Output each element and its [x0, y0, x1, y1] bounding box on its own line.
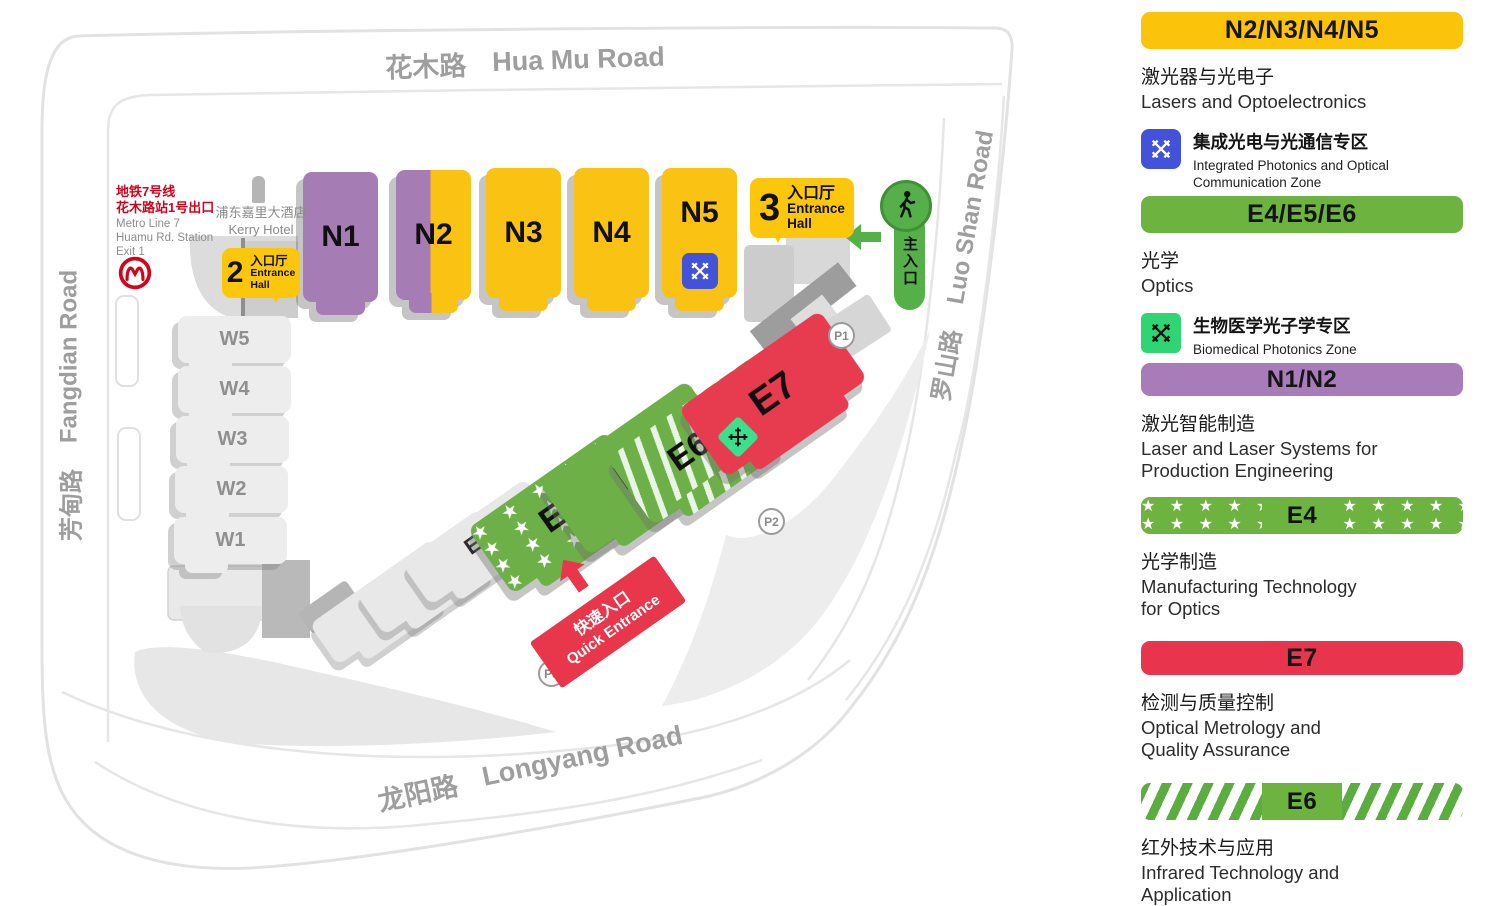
hall-stub	[587, 291, 637, 311]
road-fangdian-en: Fangdian Road	[55, 270, 83, 443]
hall-n2: N2	[396, 170, 471, 300]
metro-exit-zh: 花木路站1号出口	[116, 200, 214, 216]
legend-manufacturing-zh: 光学制造	[1141, 547, 1463, 574]
hall-stub	[499, 291, 549, 311]
legend-laser-systems-en2: Production Engineering	[1141, 460, 1463, 482]
legend-badge-e7: E7	[1141, 641, 1463, 675]
entrance-hall-3-bubble: 3 入口厅 Entrance Hall	[750, 178, 854, 238]
hall-stub	[675, 291, 725, 311]
legend-manufacturing-en2: for Optics	[1141, 598, 1463, 620]
legend-group-optics: E4/E5/E6 光学 Optics 生物医学光子学专区 Biomedical …	[1141, 196, 1463, 358]
subzone-photonics-en2: Communication Zone	[1193, 174, 1389, 191]
legend-badge-e4: E4	[1141, 497, 1463, 534]
entrance-2-en2: Hall	[250, 280, 295, 291]
hall-n4-label: N4	[592, 216, 630, 250]
legend-laser-systems-en1: Laser and Laser Systems for	[1141, 438, 1463, 460]
subzone-photonics-zh: 集成光电与光通信专区	[1193, 129, 1389, 154]
hall-w1-label: W1	[216, 529, 246, 552]
hall-w1: W1	[174, 517, 287, 564]
legend-subzone-biomedical: 生物医学光子学专区 Biomedical Photonics Zone	[1141, 313, 1463, 358]
entrance-2-number: 2	[227, 256, 244, 290]
hall-n3-label: N3	[504, 216, 542, 250]
entrance-3-en2: Hall	[787, 217, 845, 232]
hall-e7-label: E7	[742, 363, 805, 425]
hall-w2: W2	[175, 466, 288, 513]
integrated-photonics-icon	[682, 253, 718, 289]
legend-infrared-en2: Application	[1141, 884, 1463, 906]
legend-group-infrared: E6 红外技术与应用 Infrared Technology and Appli…	[1141, 783, 1463, 906]
hall-stub	[409, 293, 459, 313]
legend-optics-zh: 光学	[1141, 246, 1463, 273]
legend-badge-e4e5e6: E4/E5/E6	[1141, 196, 1463, 233]
hall-stub	[316, 295, 366, 315]
legend-metrology-zh: 检测与质量控制	[1141, 688, 1463, 715]
subzone-photonics-en1: Integrated Photonics and Optical	[1193, 157, 1389, 174]
legend-manufacturing-en1: Manufacturing Technology	[1141, 576, 1463, 598]
parking-p2: P2	[758, 508, 785, 535]
legend-badge-e6-label: E6	[1262, 783, 1342, 820]
legend-panel: N2/N3/N4/N5 激光器与光电子 Lasers and Optoelect…	[1141, 0, 1463, 900]
legend-group-metrology: E7 检测与质量控制 Optical Metrology and Quality…	[1141, 641, 1463, 761]
entrance-2-zh: 入口厅	[250, 255, 295, 268]
road-fangdian-zh: 芳甸路	[52, 469, 87, 541]
integrated-photonics-icon	[1141, 129, 1181, 169]
kerry-hotel-label: 浦东嘉里大酒店 Kerry Hotel	[206, 205, 316, 239]
metro-station-en: Huamu Rd. Station	[116, 231, 214, 245]
legend-group-lasers: N2/N3/N4/N5 激光器与光电子 Lasers and Optoelect…	[1141, 12, 1463, 192]
kerry-en: Kerry Hotel	[206, 222, 316, 239]
hall-n5-label: N5	[680, 196, 718, 230]
hall-n3: N3	[486, 168, 561, 298]
hall-w4-label: W4	[220, 378, 250, 401]
legend-group-laser-systems: N1/N2 激光智能制造 Laser and Laser Systems for…	[1141, 363, 1463, 482]
legend-lasers-en: Lasers and Optoelectronics	[1141, 91, 1463, 113]
road-huamu-zh: 花木路	[385, 44, 467, 86]
subzone-biomedical-en: Biomedical Photonics Zone	[1193, 341, 1357, 358]
hall-w3: W3	[176, 416, 289, 463]
parking-p1: P1	[828, 322, 855, 349]
entrance-3-zh: 入口厅	[787, 185, 845, 202]
entrance-3-en1: Entrance	[787, 202, 845, 217]
metro-line-zh: 地铁7号线	[116, 184, 214, 200]
venue-map: 花木路 Hua Mu Road 芳甸路 Fangdian Road 罗山路 Lu…	[0, 0, 1135, 900]
main-entrance-label: 主入口	[899, 236, 920, 287]
parking-p1-label: P1	[834, 329, 849, 343]
hall-w3-label: W3	[218, 428, 248, 451]
legend-badge-n2n3n4n5: N2/N3/N4/N5	[1141, 12, 1463, 49]
hall-w4: W4	[178, 366, 291, 413]
kerry-zh: 浦东嘉里大酒店	[206, 205, 316, 222]
shanghai-metro-icon	[118, 256, 152, 290]
legend-badge-e4-label: E4	[1262, 497, 1342, 534]
hall-n1-label: N1	[321, 220, 359, 254]
legend-infrared-en1: Infrared Technology and	[1141, 862, 1463, 884]
legend-lasers-zh: 激光器与光电子	[1141, 62, 1463, 89]
entrance-hall-2-bubble: 2 入口厅 Entrance Hall	[222, 248, 300, 298]
entrance-3-number: 3	[759, 187, 780, 230]
legend-laser-systems-zh: 激光智能制造	[1141, 409, 1463, 436]
legend-metrology-en2: Quality Assurance	[1141, 739, 1463, 761]
road-huamu-en: Hua Mu Road	[492, 42, 665, 78]
legend-subzone-integrated-photonics: 集成光电与光通信专区 Integrated Photonics and Opti…	[1141, 129, 1463, 192]
hall-w2-label: W2	[217, 478, 247, 501]
entrance-2-en1: Entrance	[250, 268, 295, 279]
hall-n4: N4	[574, 168, 649, 298]
metro-info: 地铁7号线 花木路站1号出口 Metro Line 7 Huamu Rd. St…	[116, 184, 214, 260]
subzone-biomedical-zh: 生物医学光子学专区	[1193, 313, 1357, 338]
kerry-hotel-tower-icon	[252, 176, 265, 203]
legend-group-manufacturing: E4 光学制造 Manufacturing Technology for Opt…	[1141, 497, 1463, 620]
legend-metrology-en1: Optical Metrology and	[1141, 717, 1463, 739]
hall-w5-label: W5	[220, 328, 250, 351]
hall-n5: N5	[662, 168, 737, 298]
road-label-fangdian: 芳甸路 Fangdian Road	[52, 241, 87, 571]
legend-optics-en: Optics	[1141, 275, 1463, 297]
biomedical-photonics-icon	[1141, 313, 1181, 353]
hall-w5: W5	[178, 316, 291, 363]
pedestrian-icon	[880, 180, 932, 232]
hall-n2-label: N2	[414, 218, 452, 252]
parking-p2-label: P2	[764, 515, 779, 529]
legend-infrared-zh: 红外技术与应用	[1141, 833, 1463, 860]
legend-badge-n1n2: N1/N2	[1141, 363, 1463, 396]
metro-line-en: Metro Line 7	[116, 217, 214, 231]
hall-stub	[185, 560, 228, 573]
legend-badge-e6: E6	[1141, 783, 1463, 820]
